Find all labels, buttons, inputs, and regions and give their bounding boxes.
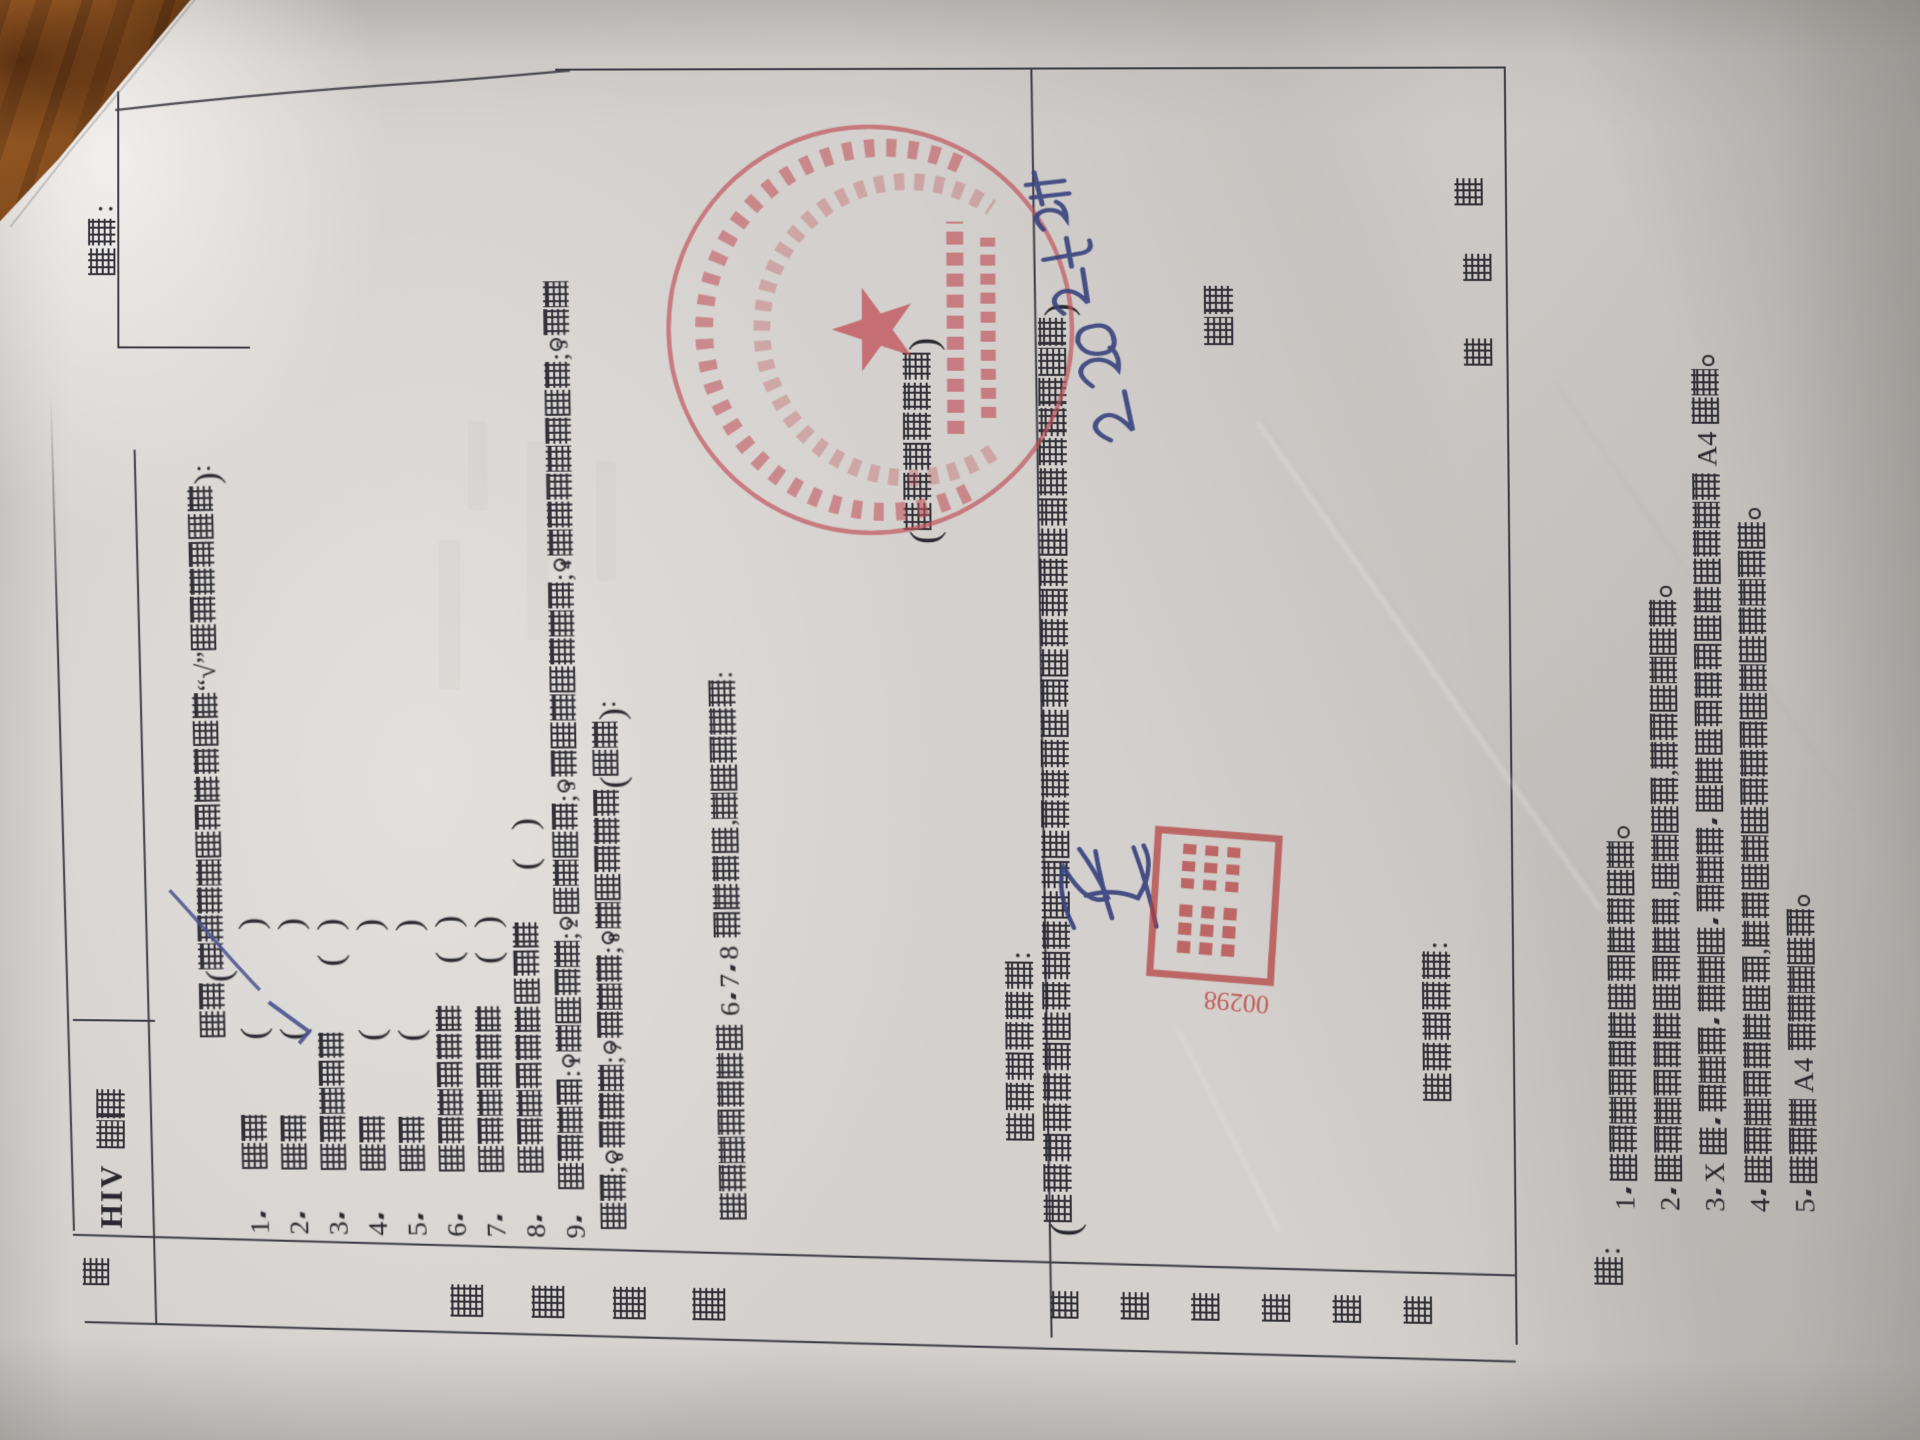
svg-text:00298: 00298 [1203,985,1270,1020]
